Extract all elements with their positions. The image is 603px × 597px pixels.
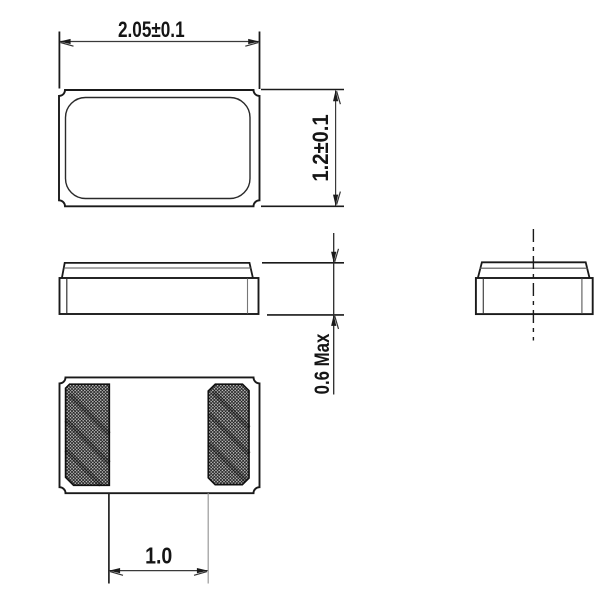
svg-text:2.05±0.1: 2.05±0.1 bbox=[118, 18, 185, 43]
svg-text:1.0: 1.0 bbox=[145, 543, 172, 569]
svg-text:0.6 Max: 0.6 Max bbox=[311, 333, 334, 394]
svg-text:1.2±0.1: 1.2±0.1 bbox=[309, 114, 333, 182]
